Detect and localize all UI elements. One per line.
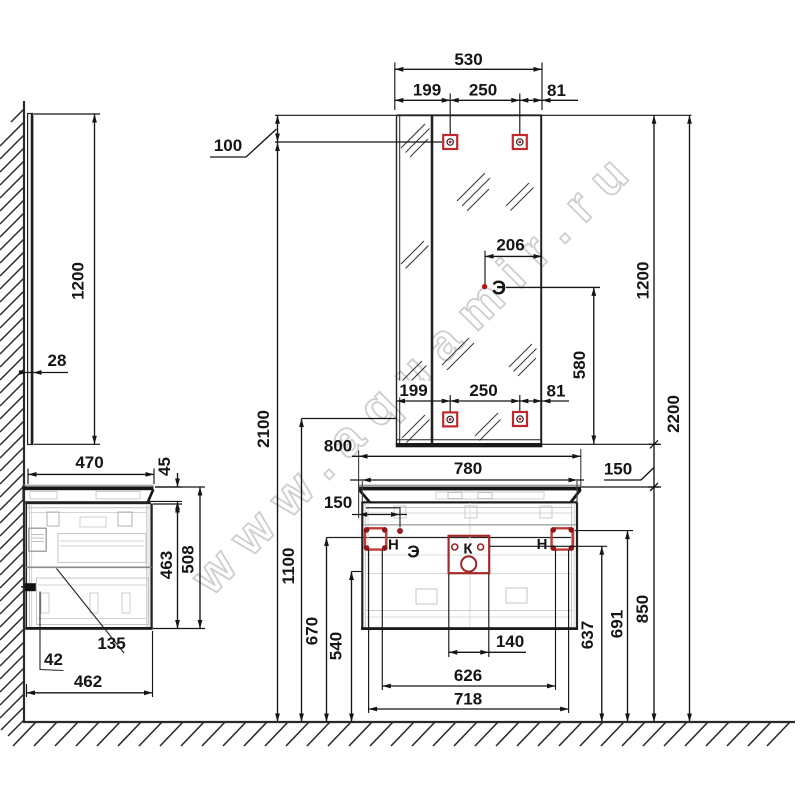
- svg-text:135: 135: [97, 634, 125, 653]
- svg-text:206: 206: [496, 236, 524, 255]
- svg-text:81: 81: [547, 81, 566, 100]
- svg-text:Н: Н: [388, 537, 399, 554]
- svg-text:540: 540: [327, 632, 346, 660]
- svg-text:718: 718: [454, 690, 482, 709]
- svg-text:Н: Н: [537, 536, 548, 553]
- svg-text:150: 150: [324, 493, 352, 512]
- svg-text:150: 150: [604, 460, 632, 479]
- svg-text:1200: 1200: [634, 262, 653, 300]
- svg-text:580: 580: [570, 351, 589, 379]
- svg-text:850: 850: [633, 595, 652, 623]
- svg-text:199: 199: [413, 81, 441, 100]
- svg-text:1100: 1100: [279, 548, 298, 585]
- svg-text:100: 100: [214, 136, 242, 155]
- svg-text:530: 530: [454, 50, 482, 69]
- svg-text:463: 463: [157, 551, 176, 579]
- svg-text:28: 28: [48, 351, 67, 370]
- svg-text:800: 800: [324, 437, 352, 456]
- svg-text:1200: 1200: [69, 262, 88, 300]
- svg-text:462: 462: [74, 672, 102, 691]
- svg-text:250: 250: [469, 381, 497, 400]
- svg-text:470: 470: [75, 453, 103, 472]
- svg-text:626: 626: [454, 666, 482, 685]
- svg-text:140: 140: [496, 632, 524, 651]
- svg-text:К: К: [463, 541, 473, 558]
- svg-text:508: 508: [179, 545, 198, 573]
- svg-text:Э: Э: [492, 278, 506, 300]
- svg-text:42: 42: [44, 650, 63, 669]
- svg-text:Э: Э: [407, 542, 419, 562]
- svg-text:2100: 2100: [254, 410, 273, 448]
- svg-text:81: 81: [547, 382, 566, 401]
- svg-text:637: 637: [578, 621, 597, 649]
- svg-text:691: 691: [608, 610, 627, 638]
- svg-text:199: 199: [399, 381, 427, 400]
- svg-text:2200: 2200: [664, 395, 683, 433]
- svg-text:45: 45: [155, 457, 174, 476]
- svg-text:670: 670: [303, 617, 322, 645]
- svg-text:250: 250: [469, 81, 497, 100]
- svg-text:780: 780: [454, 459, 482, 478]
